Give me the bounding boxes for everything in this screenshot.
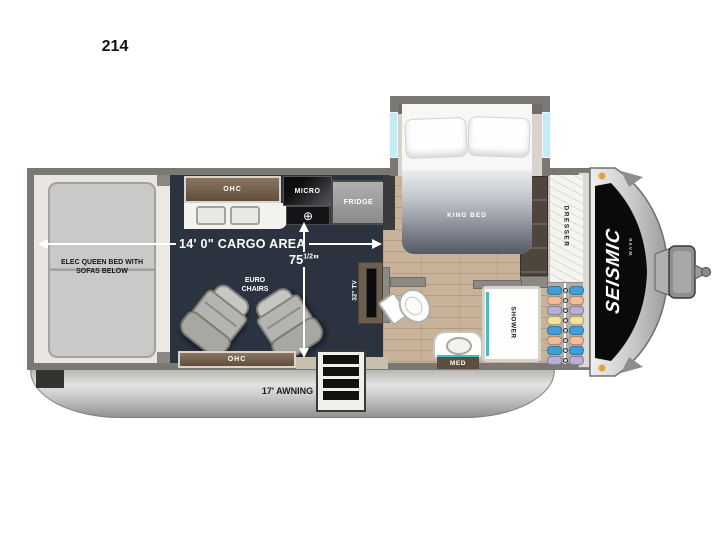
overhead-cabinet-top: OHC — [184, 176, 281, 203]
garage-divider-cap-bottom — [157, 352, 170, 363]
marker-light-bottom — [599, 365, 606, 372]
tv — [366, 268, 377, 318]
overhead-cabinet-bottom: OHC — [178, 351, 296, 368]
arrow-right-icon — [372, 239, 382, 249]
model-number: 214 — [90, 38, 140, 56]
clothes-item — [548, 346, 583, 355]
garage-bed-label: ELEC QUEEN BED WITH SOFAS BELOW — [58, 258, 146, 277]
pillow-left — [404, 117, 467, 159]
sink-basin-left — [196, 206, 226, 225]
microwave: MICRO — [283, 176, 332, 206]
arrow-left-icon — [38, 239, 48, 249]
awning-label: 17' AWNING — [250, 386, 325, 396]
shower-label: SHOWER — [510, 293, 517, 353]
king-bed-label: KING BED — [402, 212, 532, 219]
brand-sub-logo: WAVE — [628, 237, 633, 256]
garage-divider-cap-top — [157, 175, 170, 186]
interior-width-label: 751/2" — [289, 253, 319, 266]
dresser-label: DRESSER — [563, 177, 570, 277]
clothes-item — [548, 296, 583, 305]
floorplan-canvas: 214 17' AWNING ELEC QUEEN BED WITH SOFAS… — [0, 0, 720, 540]
clothes-item — [548, 306, 583, 315]
microwave-label: MICRO — [295, 188, 321, 195]
king-bed: KING BED — [402, 104, 532, 254]
clothes-item — [548, 326, 583, 335]
slideout-corner-right — [532, 104, 542, 114]
entry-steps — [316, 350, 366, 412]
front-cap: SEISMIC WAVE — [585, 160, 715, 390]
wardrobe-clothes — [548, 286, 583, 365]
slideout-window-left — [389, 112, 398, 158]
interior-width-arrow: 751/2" — [283, 222, 325, 358]
fridge: FRIDGE — [331, 180, 386, 225]
euro-chairs-label: EURO CHAIRS — [232, 276, 278, 294]
kitchen-counter — [184, 203, 287, 229]
kitchen-bedroom-gap-wall — [383, 175, 395, 230]
cooktop-burner-icon: ⊕ — [303, 210, 313, 222]
tv-label: 32" TV — [352, 270, 359, 312]
rear-bumper — [36, 370, 64, 388]
brand-logo: SEISMIC — [603, 227, 624, 316]
marker-light-top — [599, 173, 606, 180]
clothes-item — [548, 316, 583, 325]
arrow-up-icon — [299, 222, 309, 232]
pillow-right — [467, 116, 530, 158]
clothes-item — [548, 336, 583, 345]
shower-glass-accent — [486, 292, 489, 356]
cargo-length-arrow: 14' 0" CARGO AREA — [38, 236, 382, 252]
vanity-sink — [446, 337, 472, 355]
sink-basin-right — [230, 206, 260, 225]
clothes-item — [548, 286, 583, 295]
fridge-label: FRIDGE — [344, 199, 373, 206]
hitch-ball — [702, 268, 711, 277]
clothes-item — [548, 356, 583, 365]
slideout-window-right — [542, 112, 551, 158]
med-cabinet-label: MED — [450, 360, 466, 367]
med-cabinet: MED — [437, 355, 479, 369]
garage-divider-wall — [157, 175, 170, 363]
arrow-down-icon — [299, 348, 309, 358]
wardrobe — [548, 282, 583, 363]
